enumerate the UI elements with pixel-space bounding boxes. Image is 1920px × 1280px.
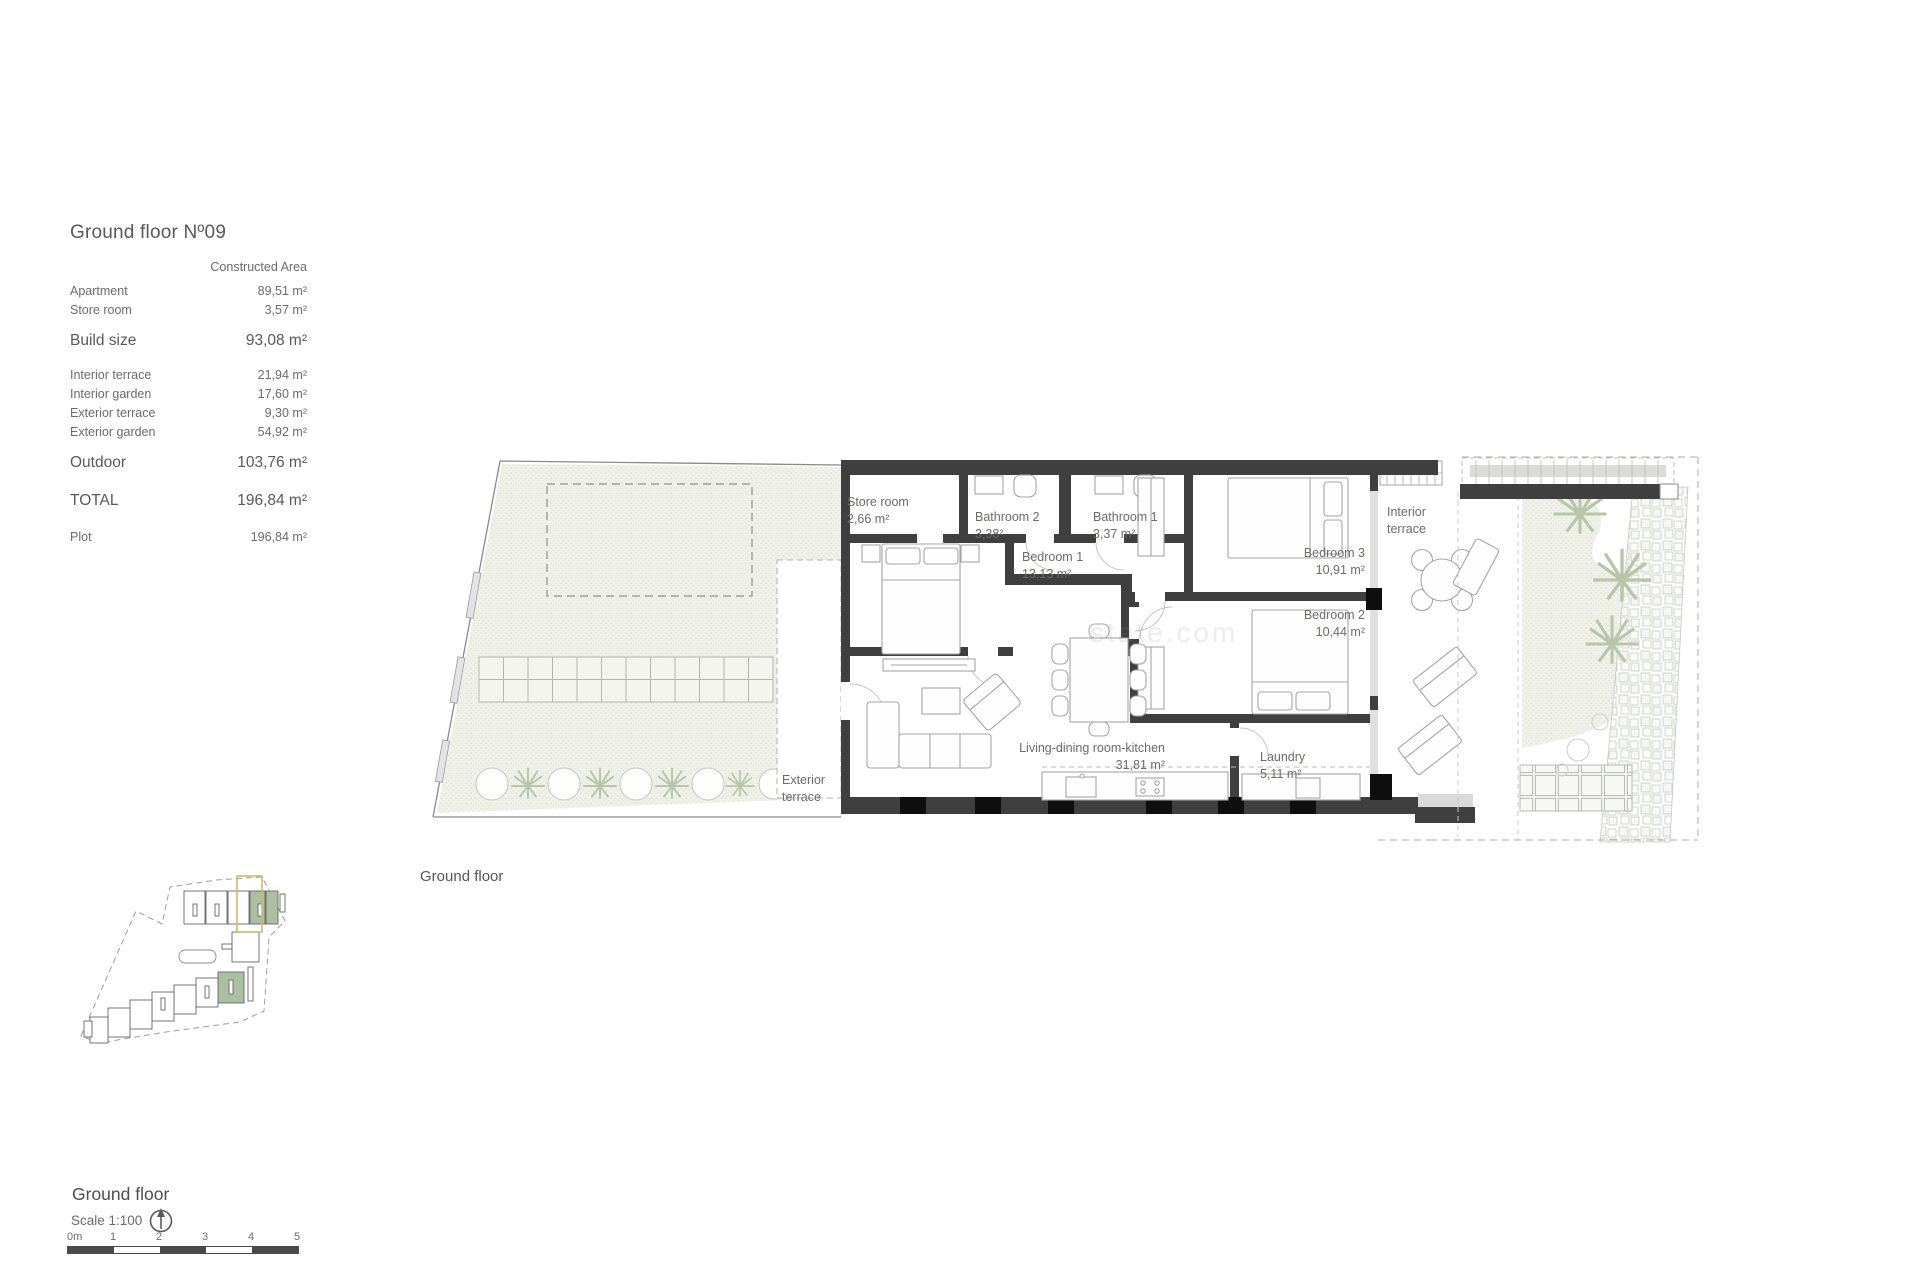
site-units-upper [184,891,285,962]
table-row-build-size: Build size 93,08 m² [70,331,307,350]
row-value: 21,94 m² [258,367,307,383]
scale-bar: 0m 1 2 3 4 5 [67,1231,299,1257]
row-label: Exterior terrace [70,405,155,421]
table-row-total: TOTAL 196,84 m² [70,491,307,510]
scale-tick-label: 4 [248,1231,254,1243]
scale-bar-segments [67,1246,299,1254]
row-label: Apartment [70,283,128,299]
table-row: Exterior terrace 9,30 m² [70,405,307,421]
plan-caption: Ground floor [420,868,503,885]
terrace-wall [1415,807,1475,823]
scale-tick-label: 0m [67,1231,82,1243]
floor-plan-drawing: state.com [430,452,1705,852]
area-summary-panel: Ground floor Nº09 Constructed Area Apart… [70,222,307,545]
site-location-map [66,874,301,1091]
row-label: TOTAL [70,491,119,510]
scale-tick-label: 5 [294,1231,300,1243]
glazing-east [1366,475,1382,797]
row-value: 89,51 m² [258,283,307,299]
table-row-outdoor: Outdoor 103,76 m² [70,453,307,472]
row-value: 196,84 m² [251,529,307,545]
row-value: 54,92 m² [258,424,307,440]
terrace-step [1418,794,1473,807]
floor-plan: state.com Store room2,66 m² Bathroom 23,… [430,452,1705,852]
row-label: Build size [70,331,136,350]
row-label: Interior garden [70,386,151,402]
table-row: Exterior garden 54,92 m² [70,424,307,440]
row-value: 17,60 m² [258,386,307,402]
garden-grid-pergola [479,657,773,702]
paver-grid [1520,765,1632,811]
footer-title: Ground floor [72,1184,169,1205]
scale-tick-label: 3 [202,1231,208,1243]
row-label: Interior terrace [70,367,151,383]
row-label: Outdoor [70,453,126,472]
row-label: Plot [70,529,92,545]
scale-tick-label: 2 [156,1231,162,1243]
table-row-plot: Plot 196,84 m² [70,529,307,545]
exterior-terrace-area [777,560,841,798]
plan-title: Ground floor Nº09 [70,222,307,244]
row-value: 103,76 m² [237,453,307,472]
table-row: Store room 3,57 m² [70,302,307,318]
watermark: state.com [1090,617,1238,648]
row-label: Store room [70,302,132,318]
row-value: 196,84 m² [237,491,307,510]
row-value: 93,08 m² [246,331,307,350]
table-row: Apartment 89,51 m² [70,283,307,299]
site-car [179,950,216,963]
scale-tick-label: 1 [110,1231,116,1243]
table-row: Interior terrace 21,94 m² [70,367,307,383]
scale-label: Scale 1:100 [71,1213,142,1228]
constructed-area-header: Constructed Area [70,260,307,274]
row-label: Exterior garden [70,424,155,440]
row-value: 9,30 m² [265,405,307,421]
exterior-garden-right-group [1430,457,1698,842]
table-row: Interior garden 17,60 m² [70,386,307,402]
row-value: 3,57 m² [265,302,307,318]
